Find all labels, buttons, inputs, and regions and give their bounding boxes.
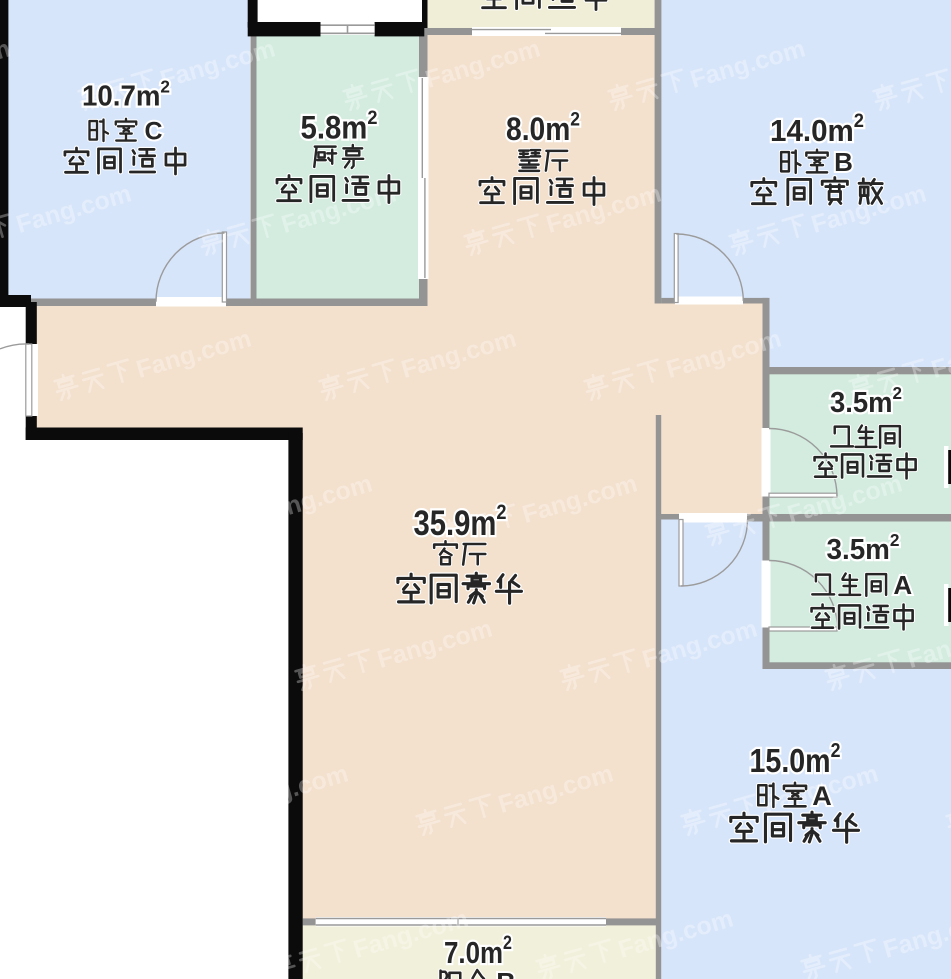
svg-text:5.8m2: 5.8m2 (301, 107, 378, 145)
svg-text:10.7m2: 10.7m2 (82, 76, 170, 113)
svg-text:14.0m2: 14.0m2 (770, 110, 864, 149)
svg-text:3.5m2: 3.5m2 (826, 530, 899, 567)
svg-text:15.0m2: 15.0m2 (749, 740, 840, 779)
svg-text:C: C (144, 117, 162, 145)
svg-text:3.5m2: 3.5m2 (830, 382, 902, 418)
svg-text:7.0m2: 7.0m2 (444, 932, 512, 971)
svg-text:B: B (834, 147, 853, 177)
svg-text:A: A (893, 570, 912, 600)
svg-text:8.0m2: 8.0m2 (506, 108, 580, 148)
svg-text:35.9m2: 35.9m2 (413, 501, 506, 543)
svg-text:B: B (496, 968, 516, 979)
svg-text:A: A (812, 781, 832, 811)
